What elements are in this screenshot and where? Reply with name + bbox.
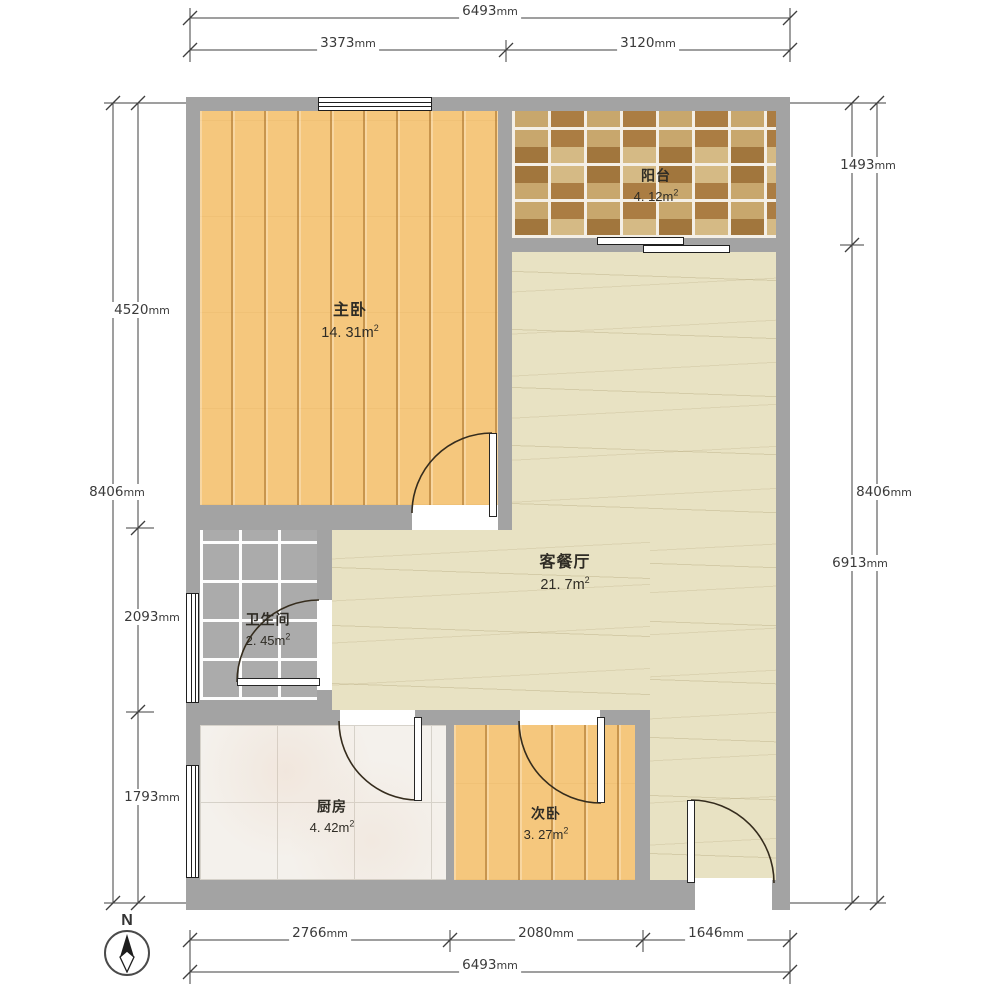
room-label-second-bedroom: 次卧 3. 27m2: [524, 804, 569, 843]
room-label-kitchen: 厨房 4. 42m2: [310, 797, 355, 836]
dim-left-top-segment: 4520mm: [111, 302, 173, 318]
dim-right-bottom-segment: 6913mm: [829, 555, 891, 571]
dim-top-left-segment: 3373mm: [317, 35, 379, 51]
door-opening-master-bedroom: [412, 505, 498, 530]
floor-second-bedroom: [454, 725, 635, 880]
floor-living-dining-lower: [650, 530, 776, 880]
dim-right-total: 8406mm: [853, 484, 915, 500]
compass-needle-icon: [105, 931, 149, 975]
room-name: 卫生间: [246, 610, 291, 630]
dim-bottom-middle-segment: 2080mm: [515, 925, 577, 941]
room-name: 次卧: [524, 804, 569, 824]
room-name: 客餐厅: [539, 552, 590, 574]
dim-bottom-total: 6493mm: [459, 957, 521, 973]
door-leaf-entry: [687, 800, 695, 883]
door-opening-kitchen: [340, 710, 415, 725]
dim-top-total: 6493mm: [459, 3, 521, 19]
room-label-living-dining: 客餐厅 21. 7m2: [539, 552, 590, 596]
window-kitchen-left: [186, 765, 199, 878]
door-leaf-bathroom: [237, 678, 320, 686]
floor-living-dining-middle: [332, 530, 650, 710]
room-area: 3. 27m2: [524, 824, 569, 844]
dim-left-total: 8406mm: [86, 484, 148, 500]
window-master-bedroom-top: [318, 97, 432, 111]
room-area: 14. 31m2: [321, 323, 378, 344]
dim-top-right-segment: 3120mm: [617, 35, 679, 51]
window-bathroom-left: [186, 593, 199, 703]
compass-north-label: N: [121, 912, 133, 930]
door-opening-entry: [695, 878, 772, 910]
floor-plan: 主卧 14. 31m2 阳台 4. 12m2 客餐厅 21. 7m2 卫生间 2…: [0, 0, 990, 990]
door-leaf-second-bedroom: [597, 717, 605, 803]
room-label-master-bedroom: 主卧 14. 31m2: [321, 300, 378, 344]
dim-left-bottom-segment: 1793mm: [121, 789, 183, 805]
door-leaf-master-bedroom: [489, 433, 497, 517]
floor-living-dining-upper: [512, 252, 776, 530]
room-name: 主卧: [321, 300, 378, 322]
balcony-sliding-door-left-panel: [597, 237, 684, 245]
room-area: 2. 45m2: [246, 630, 291, 650]
room-area: 4. 12m2: [634, 186, 679, 206]
room-name: 厨房: [310, 797, 355, 817]
room-area: 4. 42m2: [310, 817, 355, 837]
dim-bottom-right-segment: 1646mm: [685, 925, 747, 941]
dim-right-top-segment: 1493mm: [837, 157, 899, 173]
room-label-balcony: 阳台 4. 12m2: [634, 166, 679, 205]
door-leaf-kitchen: [414, 717, 422, 801]
room-name: 阳台: [634, 166, 679, 186]
door-opening-bathroom: [317, 600, 332, 690]
dim-left-middle-segment: 2093mm: [121, 609, 183, 625]
room-area: 21. 7m2: [539, 575, 590, 596]
door-opening-second-bedroom: [520, 710, 600, 725]
room-label-bathroom: 卫生间 2. 45m2: [246, 610, 291, 649]
balcony-sliding-door-right-panel: [643, 245, 730, 253]
dim-bottom-left-segment: 2766mm: [289, 925, 351, 941]
